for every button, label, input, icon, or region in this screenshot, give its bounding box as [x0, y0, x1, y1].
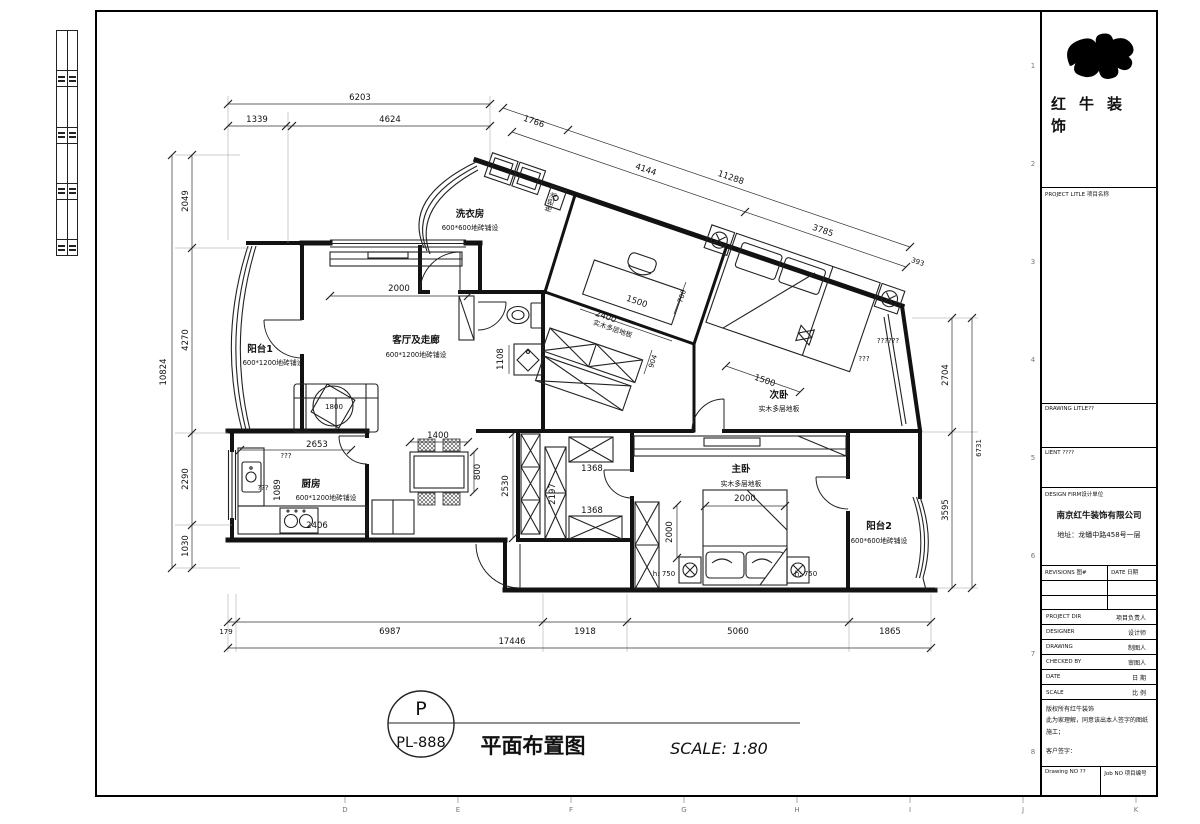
row-label-en: PROJECT DIR	[1046, 614, 1081, 620]
grid-number: 7	[1031, 650, 1035, 658]
dim-label: 1368	[581, 464, 603, 474]
dim-label: 2000	[665, 521, 675, 543]
room-label: 厨房	[301, 478, 320, 490]
row-label-cn: 设计师	[1128, 628, 1152, 637]
dim-label: 17446	[498, 637, 525, 647]
chair	[418, 493, 435, 505]
revisions-header: REVISIONS 图#	[1042, 566, 1108, 580]
dim-label: 5060	[727, 627, 749, 637]
dim-label: 2000	[734, 494, 756, 504]
room-floor-label: 600*1200地砖铺设	[386, 350, 447, 359]
dim-label: 1766	[522, 114, 546, 131]
dim-label: ???	[858, 355, 869, 363]
dim-label: h: 750	[795, 570, 817, 578]
signature-row: DRAWING 制图人	[1042, 640, 1156, 655]
drawing-tag: P	[415, 698, 426, 720]
redniu-bull-logo	[1060, 28, 1138, 92]
grid-number: 8	[1031, 748, 1035, 756]
row-label-en: SCALE	[1046, 690, 1064, 696]
dim-label: 700	[676, 289, 688, 304]
dim-label: 2653	[306, 440, 328, 450]
room-label: 次卧	[769, 389, 789, 401]
dim-label: 10824	[159, 358, 169, 385]
dim-label: 4144	[634, 162, 658, 179]
dim-label: ???	[280, 452, 291, 460]
toilet	[531, 303, 542, 328]
grid-number: 6	[1031, 552, 1036, 560]
signature-row: CHECKED BY 审图人	[1042, 655, 1156, 670]
chair	[443, 493, 460, 505]
floor-plan-sheet: 6203 1339 4624 1766 4144 11288 3785 393 …	[0, 0, 1200, 824]
drawing-code: PL-888	[396, 735, 445, 751]
row-label-en: CHECKED BY	[1046, 659, 1081, 665]
company-name-line1: 红牛装	[1051, 94, 1156, 116]
note-line: 此为家理解，同意该出本人签字的图纸施工；	[1046, 715, 1152, 738]
design-firm-cell: DESIGN FIRM设计单位 南京红牛装饰有限公司 地址：龙蟠中路458号一层	[1042, 488, 1156, 566]
dim-label: 1030	[181, 535, 191, 557]
signature-row: DESIGNER 设计师	[1042, 625, 1156, 640]
dimension-lines	[168, 96, 978, 652]
dim-label: 179	[219, 628, 232, 636]
dim-label: 800	[473, 464, 483, 480]
dim-label: 1339	[246, 115, 268, 125]
pillow	[706, 552, 744, 578]
dim-label: 11288	[716, 169, 745, 187]
grid-letter: D	[342, 806, 347, 814]
bed2-furniture	[681, 225, 904, 380]
dim-label: 1089	[273, 479, 283, 501]
room-floor-label: 实木多层地板	[721, 479, 762, 488]
dim-label: 1108	[496, 348, 506, 370]
row-label-cn: 制图人	[1128, 643, 1152, 652]
dim-label: 6203	[349, 93, 371, 103]
grid-letter: E	[456, 806, 460, 814]
row-label-en: DATE	[1046, 674, 1060, 680]
room-label: 阳台1	[247, 343, 273, 355]
dim-label: 1500	[625, 294, 649, 311]
grid-number: 4	[1031, 356, 1036, 364]
drawing-title-bar: P PL-888 平面布置图 SCALE: 1:80	[388, 691, 800, 758]
room-label: 阳台2	[866, 520, 892, 532]
row-label-en: DRAWING	[1046, 644, 1073, 650]
dimension-labels: 6203 1339 4624 1766 4144 11288 3785 393 …	[159, 93, 983, 647]
floor-plan-drawing: 6203 1339 4624 1766 4144 11288 3785 393 …	[0, 0, 1200, 824]
notes-cell: 版权所有红牛装饰 此为家理解，同意该出本人签字的图纸施工； 客户签字：	[1042, 700, 1156, 767]
dining-table	[410, 452, 468, 492]
dim-label: 904	[647, 353, 659, 369]
grid-letter: G	[681, 806, 686, 814]
signature-row: SCALE 比 例	[1042, 685, 1156, 700]
dim-label: ??????	[877, 337, 900, 345]
dim-label: 1500	[753, 373, 777, 390]
dim-label: 4624	[379, 115, 401, 125]
dim-label: 1400	[427, 431, 449, 441]
row-label-cn: 日 期	[1132, 673, 1152, 682]
bathroom-fixtures	[507, 303, 542, 375]
signature-row: PROJECT DIR 项目负责人	[1042, 610, 1156, 625]
revisions-table: REVISIONS 图# DATE 日期	[1042, 566, 1156, 610]
room-floor-label: 实木多层地板	[759, 404, 800, 413]
grid-letter: K	[1134, 806, 1139, 814]
room-floor-label: 600*1200地砖铺设	[243, 358, 304, 367]
dim-label: 2049	[181, 190, 191, 212]
title-block: 红牛装 饰 PROJECT LITLE 项目名称 DRAWING LITLE??…	[1040, 10, 1158, 797]
walls	[228, 160, 935, 590]
note-line: 版权所有红牛装饰	[1046, 704, 1152, 715]
dim-label: 2704	[941, 364, 951, 386]
dim-label: 1918	[574, 627, 596, 637]
dim-label: 2406	[306, 521, 328, 531]
signature-rows: PROJECT DIR 项目负责人 DESIGNER 设计师 DRAWING 制…	[1042, 610, 1156, 700]
dim-label: 1865	[879, 627, 901, 637]
dim-label: 6731	[975, 439, 983, 457]
dim-label: 2000	[388, 284, 410, 294]
grid-number: 2	[1031, 160, 1035, 168]
dim-label: 393	[910, 256, 925, 268]
project-title-label: PROJECT LITLE 项目名称	[1042, 188, 1156, 198]
room-label: 主卧	[731, 463, 751, 475]
row-label-cn: 比 例	[1132, 688, 1152, 697]
design-firm-label: DESIGN FIRM设计单位	[1042, 488, 1156, 498]
grid-number: 3	[1031, 258, 1035, 266]
counter	[238, 506, 367, 534]
signature-row: DATE 日 期	[1042, 670, 1156, 685]
corridor-wardrobes	[536, 328, 643, 411]
dim-label: ???	[257, 484, 268, 492]
row-label-cn: 项目负责人	[1116, 613, 1152, 622]
living-furniture	[294, 252, 474, 432]
grid-number: 1	[1031, 62, 1035, 70]
dim-label: 6987	[379, 627, 401, 637]
drawing-title-cell: DRAWING LITLE??	[1042, 404, 1156, 448]
row-label-en: DESIGNER	[1046, 629, 1075, 635]
project-title-cell: PROJECT LITLE 项目名称	[1042, 188, 1156, 404]
dim-label: 3785	[811, 223, 835, 240]
note-line: 客户签字：	[1046, 746, 1152, 757]
room-label: 客厅及走廊	[391, 334, 440, 346]
bed1-furniture	[634, 436, 846, 585]
grid-letter: F	[569, 806, 573, 814]
dining-furniture	[410, 439, 468, 505]
grid-letter: H	[794, 806, 799, 814]
dim-label: 1368	[581, 506, 603, 516]
firm-name: 南京红牛装饰有限公司	[1042, 509, 1156, 521]
room-floor-label: 600*600地砖铺设	[442, 223, 499, 232]
desk-chair	[627, 252, 658, 274]
drawing-title: 平面布置图	[481, 734, 586, 758]
grid-letter: J	[1021, 806, 1024, 814]
job-no-label: Job NO 项目编号	[1101, 767, 1156, 795]
drawing-scale: SCALE: 1:80	[670, 739, 768, 758]
grid-letter: I	[909, 806, 911, 814]
dim-label: 2290	[181, 468, 191, 490]
company-name-line2: 饰	[1051, 116, 1156, 138]
drawing-no-label: Drawing NO ??	[1042, 767, 1101, 795]
dim-label: 2530	[501, 475, 511, 497]
room-label: 洗衣房	[456, 208, 485, 220]
dim-label: 2197	[548, 483, 558, 505]
dim-label: h: 750	[653, 570, 675, 578]
row-label-cn: 审图人	[1128, 658, 1152, 667]
bed	[706, 233, 880, 371]
drawing-title-label: DRAWING LITLE??	[1042, 404, 1156, 412]
room-floor-label: 600*600地砖铺设	[851, 536, 908, 545]
logo-section: 红牛装 饰	[1042, 12, 1156, 188]
dim-label: 1800	[325, 403, 343, 411]
drawing-number-cell: Drawing NO ?? Job NO 项目编号	[1042, 767, 1156, 795]
client-cell: LIENT ????	[1042, 448, 1156, 488]
dim-label: 4270	[181, 329, 191, 351]
dim-label: 3595	[941, 499, 951, 521]
firm-address: 地址：龙蟠中路458号一层	[1042, 530, 1156, 540]
room-floor-label: 600*1200地砖铺设	[296, 493, 357, 502]
grid-number: 5	[1031, 454, 1035, 462]
revisions-date-header: DATE 日期	[1108, 566, 1156, 580]
client-label: LIENT ????	[1042, 448, 1156, 456]
